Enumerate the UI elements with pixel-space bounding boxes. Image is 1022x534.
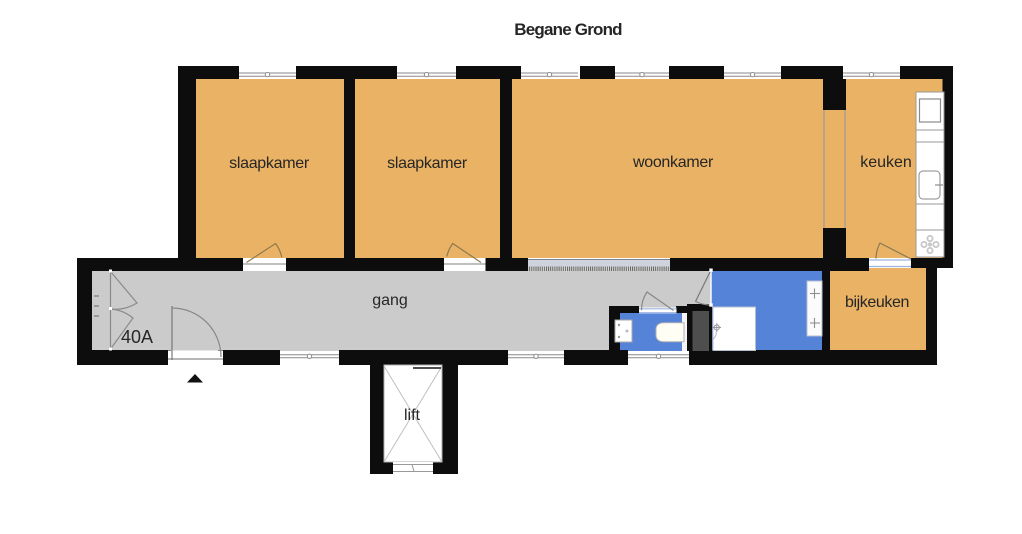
svg-text:Begane Grond: Begane Grond xyxy=(514,20,622,39)
svg-text:slaapkamer: slaapkamer xyxy=(387,155,468,172)
svg-text:gang: gang xyxy=(372,292,408,309)
svg-text:40A: 40A xyxy=(121,327,153,347)
svg-text:slaapkamer: slaapkamer xyxy=(229,155,310,172)
svg-text:bijkeuken: bijkeuken xyxy=(845,294,909,311)
svg-text:lift: lift xyxy=(404,407,421,424)
svg-text:keuken: keuken xyxy=(860,154,912,171)
svg-text:woonkamer: woonkamer xyxy=(632,154,714,171)
